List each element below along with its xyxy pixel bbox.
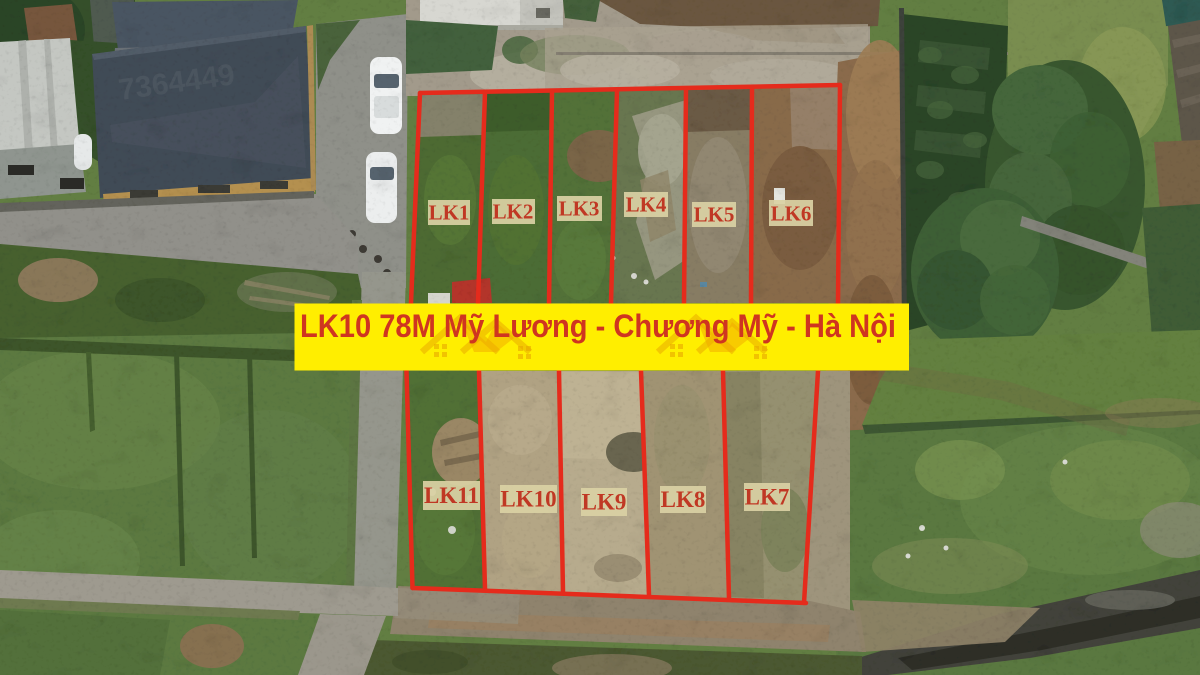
svg-text:LK8: LK8 [661,487,706,512]
svg-text:LK9: LK9 [582,490,627,515]
svg-text:LK7: LK7 [745,485,790,510]
svg-text:LK10: LK10 [500,487,556,512]
svg-text:LK1: LK1 [429,201,470,225]
svg-text:LK6: LK6 [771,202,812,226]
svg-text:LK4: LK4 [626,193,667,217]
svg-text:LK10 78M Mỹ Lương - Chương Mỹ: LK10 78M Mỹ Lương - Chương Mỹ - Hà Nội [300,308,896,344]
svg-text:LK2: LK2 [493,200,534,224]
svg-text:LK3: LK3 [559,197,600,221]
svg-text:LK11: LK11 [424,483,479,508]
svg-text:LK5: LK5 [694,203,735,227]
